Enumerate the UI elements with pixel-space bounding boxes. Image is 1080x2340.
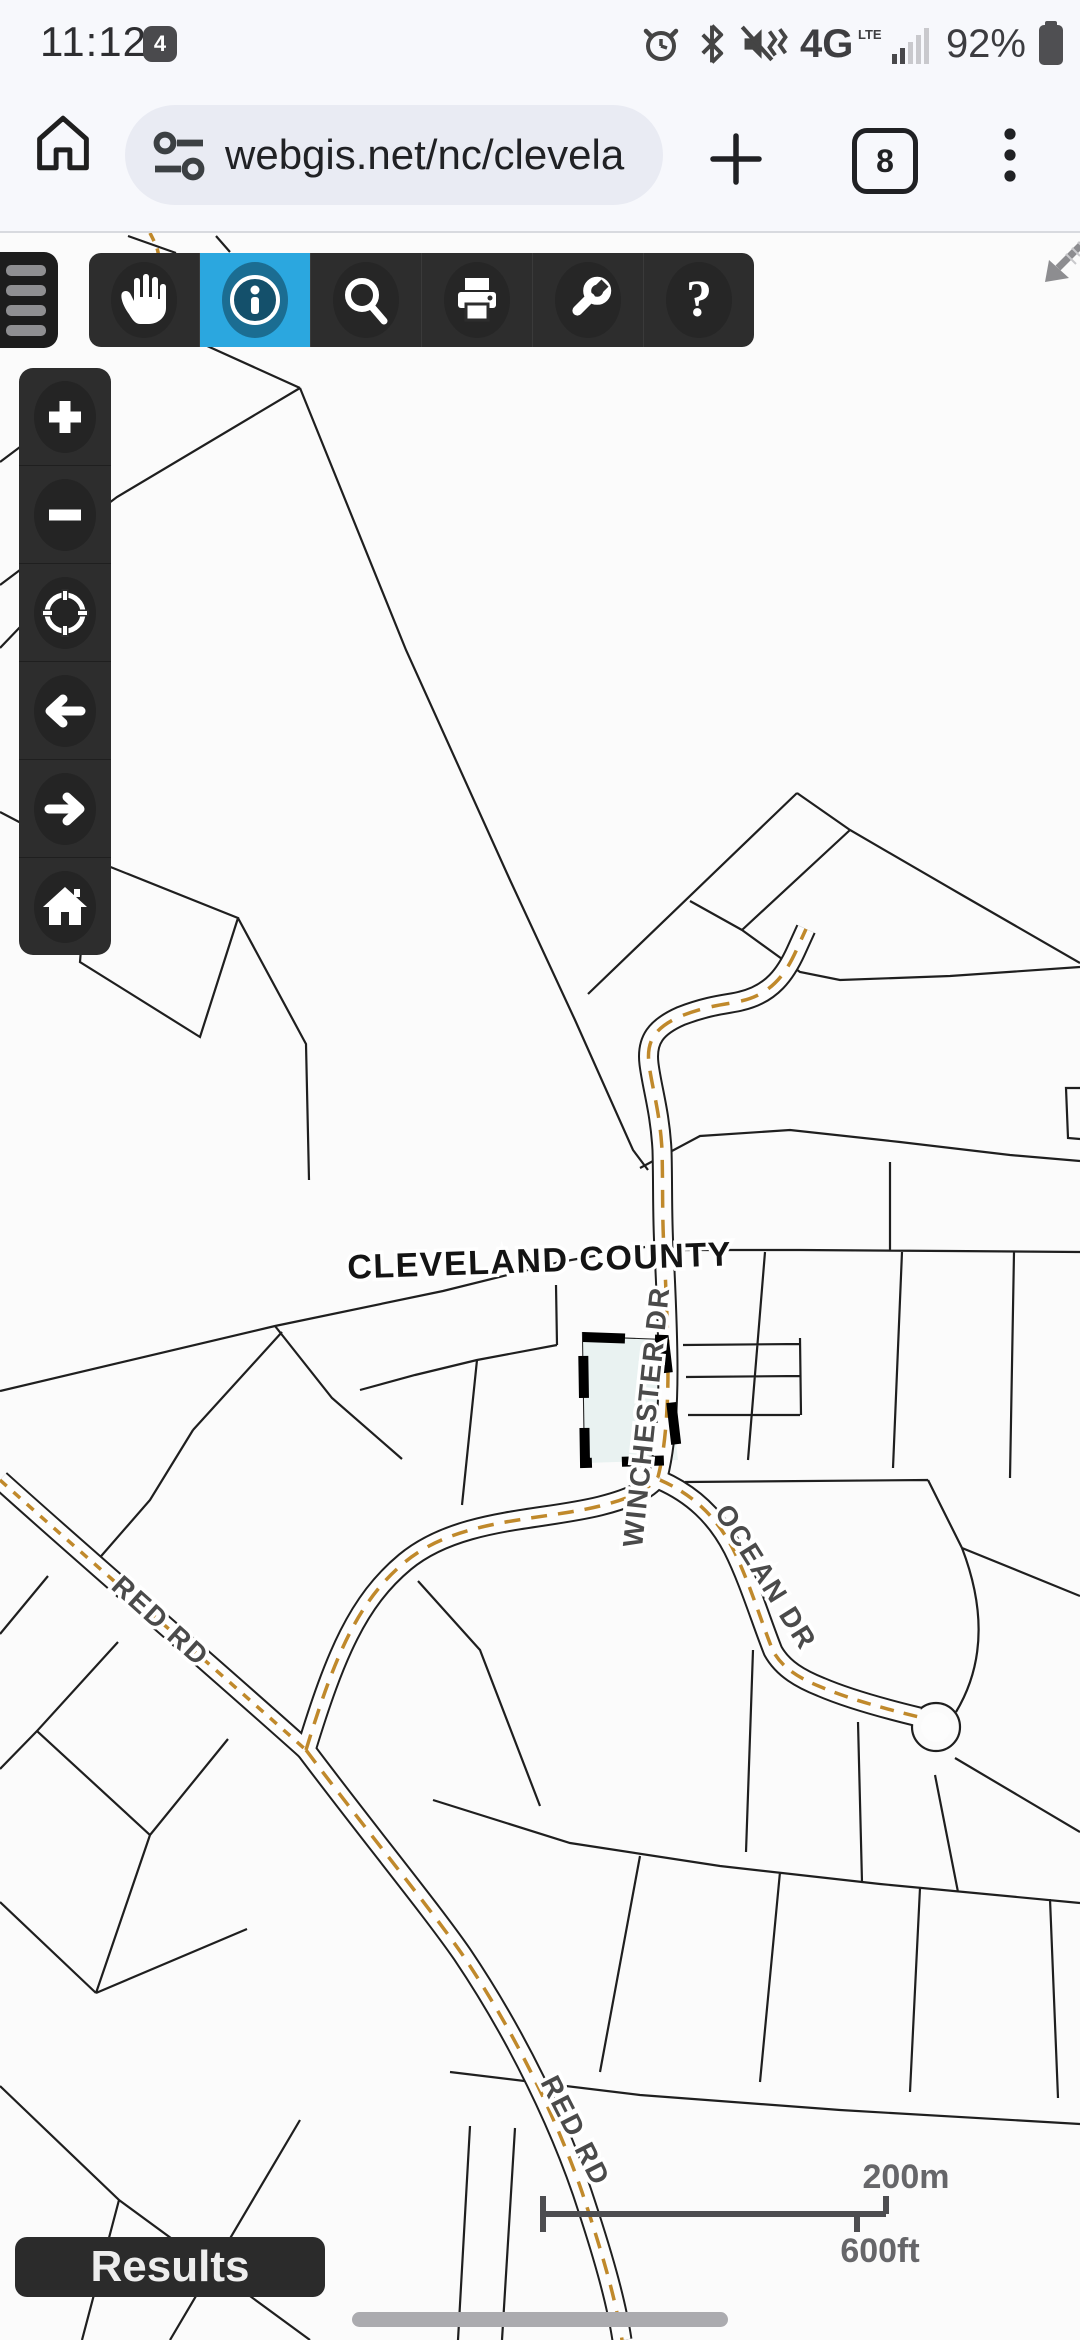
new-tab-icon[interactable] [705,128,767,190]
notification-badge: 4 [143,26,177,62]
url-bar[interactable]: webgis.net/nc/clevela [125,105,663,205]
browser-chrome: 11:12 4 4G LTE [0,0,1080,233]
url-text[interactable]: webgis.net/nc/clevela [225,131,624,179]
print-icon [449,272,505,328]
browser-toolbar: webgis.net/nc/clevela 8 [0,88,1080,229]
svg-text:LTE: LTE [858,27,882,42]
collapse-panel-icon[interactable] [1038,240,1080,290]
menu-kebab-icon[interactable] [1000,124,1020,188]
tool-pan-button[interactable] [89,253,200,347]
pan-hand-icon [118,272,170,328]
house-icon [39,881,91,933]
home-icon[interactable] [30,110,96,176]
tool-help-button[interactable]: ? [644,253,754,347]
tool-identify-button[interactable] [200,253,311,347]
tool-settings-button[interactable] [533,253,644,347]
signal-strength-icon [892,22,936,66]
tab-switcher-button[interactable]: 8 [852,128,918,194]
home-extent-button[interactable] [19,858,111,955]
layers-menu-button[interactable] [0,252,58,348]
map-canvas[interactable]: CLEVELAND COUNTY WINCHESTER DR OCEAN DR … [0,0,1080,2340]
hamburger-icon [6,265,46,276]
scale-metric-label: 200m [863,2158,950,2196]
crosshair-icon [39,587,91,639]
mute-vibrate-icon [740,21,790,67]
network-type-icon: 4G LTE [800,19,882,69]
tool-print-button[interactable] [422,253,533,347]
forward-button[interactable] [19,760,111,858]
results-button[interactable]: Results [15,2237,325,2297]
tab-count: 8 [876,143,894,180]
identify-info-icon [227,272,283,328]
search-icon [338,272,394,328]
svg-text:?: ? [686,272,712,328]
tool-search-button[interactable] [311,253,422,347]
cul-de-sac-surface [921,1712,951,1742]
svg-text:4G: 4G [800,22,853,66]
back-button[interactable] [19,662,111,760]
results-label: Results [91,2242,250,2292]
locate-button[interactable] [19,564,111,662]
zoom-out-button[interactable] [19,466,111,564]
alarm-icon [638,21,684,67]
minus-icon [41,491,89,539]
arrow-right-icon [41,785,89,833]
bluetooth-icon [694,21,730,67]
battery-percent: 92% [946,22,1026,67]
scrollbar-handle[interactable] [352,2312,728,2327]
wrench-icon [560,272,616,328]
map-tool-toolbar: ? [89,253,754,347]
zoom-in-button[interactable] [19,368,111,466]
plus-icon [41,393,89,441]
site-settings-icon[interactable] [147,123,211,187]
status-bar: 11:12 4 4G LTE [0,0,1080,88]
scale-imperial-label: 600ft [840,2232,919,2270]
help-icon: ? [671,272,727,328]
map-background [0,231,1080,2340]
arrow-left-icon [41,687,89,735]
clock: 11:12 [40,18,147,66]
battery-icon [1036,19,1066,69]
map-nav-toolbar [19,368,111,955]
phone-screen: CLEVELAND COUNTY WINCHESTER DR OCEAN DR … [0,0,1080,2340]
